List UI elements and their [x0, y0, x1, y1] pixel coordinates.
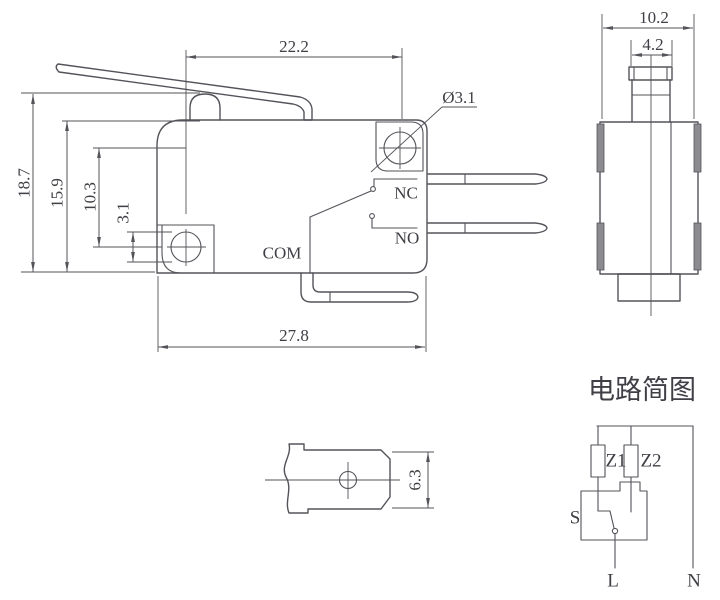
dim-22-value: 22.2 — [279, 37, 309, 56]
s-label: S — [570, 508, 581, 529]
z2-label: Z2 — [640, 451, 661, 472]
dim-159-value: 15.9 — [48, 178, 67, 208]
no-contact-dot — [370, 214, 375, 219]
nc-terminal-prong — [428, 174, 547, 184]
latch-tab-right-upper — [694, 124, 701, 172]
n-label: N — [687, 571, 701, 592]
microswitch-drawing: NC NO COM 22.2 18.7 15.9 10.3 3.1 27.8 — [0, 0, 720, 600]
lever-arm — [56, 64, 312, 120]
circuit-title: 电路简图 — [588, 375, 696, 405]
nc-label: NC — [394, 184, 418, 203]
latch-tab-left-lower — [597, 223, 604, 270]
z1-load — [591, 445, 605, 477]
z1-label: Z1 — [605, 451, 626, 472]
common-blade-diagonal — [310, 191, 371, 217]
technical-drawing-page: NC NO COM 22.2 18.7 15.9 10.3 3.1 27.8 — [0, 0, 720, 600]
dim-103-value: 10.3 — [81, 182, 100, 212]
l-label: L — [607, 571, 619, 592]
latch-tab-right-lower — [694, 223, 701, 270]
dim-42-value: 4.2 — [642, 35, 663, 54]
dim-187-value: 18.7 — [15, 168, 34, 198]
latch-tab-left-upper — [597, 124, 604, 172]
dim-102-value: 10.2 — [639, 8, 669, 27]
no-terminal-prong — [428, 223, 547, 233]
plunger-button — [190, 94, 220, 120]
switch-blade — [610, 511, 614, 528]
com-label: COM — [263, 244, 302, 263]
side-plunger-cap — [629, 67, 672, 80]
circuit-diagram: 电路简图 Z1 Z2 S L N — [570, 375, 701, 592]
switch-box — [581, 482, 647, 540]
terminal-detail-view: 6.3 — [265, 444, 434, 513]
dim-278-value: 27.8 — [279, 326, 309, 345]
side-terminal-block — [618, 274, 680, 301]
side-body — [600, 122, 698, 274]
com-terminal-prong — [301, 273, 418, 302]
switch-pivot-dot — [612, 528, 617, 533]
dim-31-value: 3.1 — [114, 202, 133, 223]
no-label: NO — [395, 229, 420, 248]
dim-hole-dia-value: Ø3.1 — [442, 88, 476, 107]
side-view: 10.2 4.2 — [597, 8, 701, 316]
terminal-outline — [284, 444, 390, 513]
dim-63-value: 6.3 — [406, 469, 425, 490]
